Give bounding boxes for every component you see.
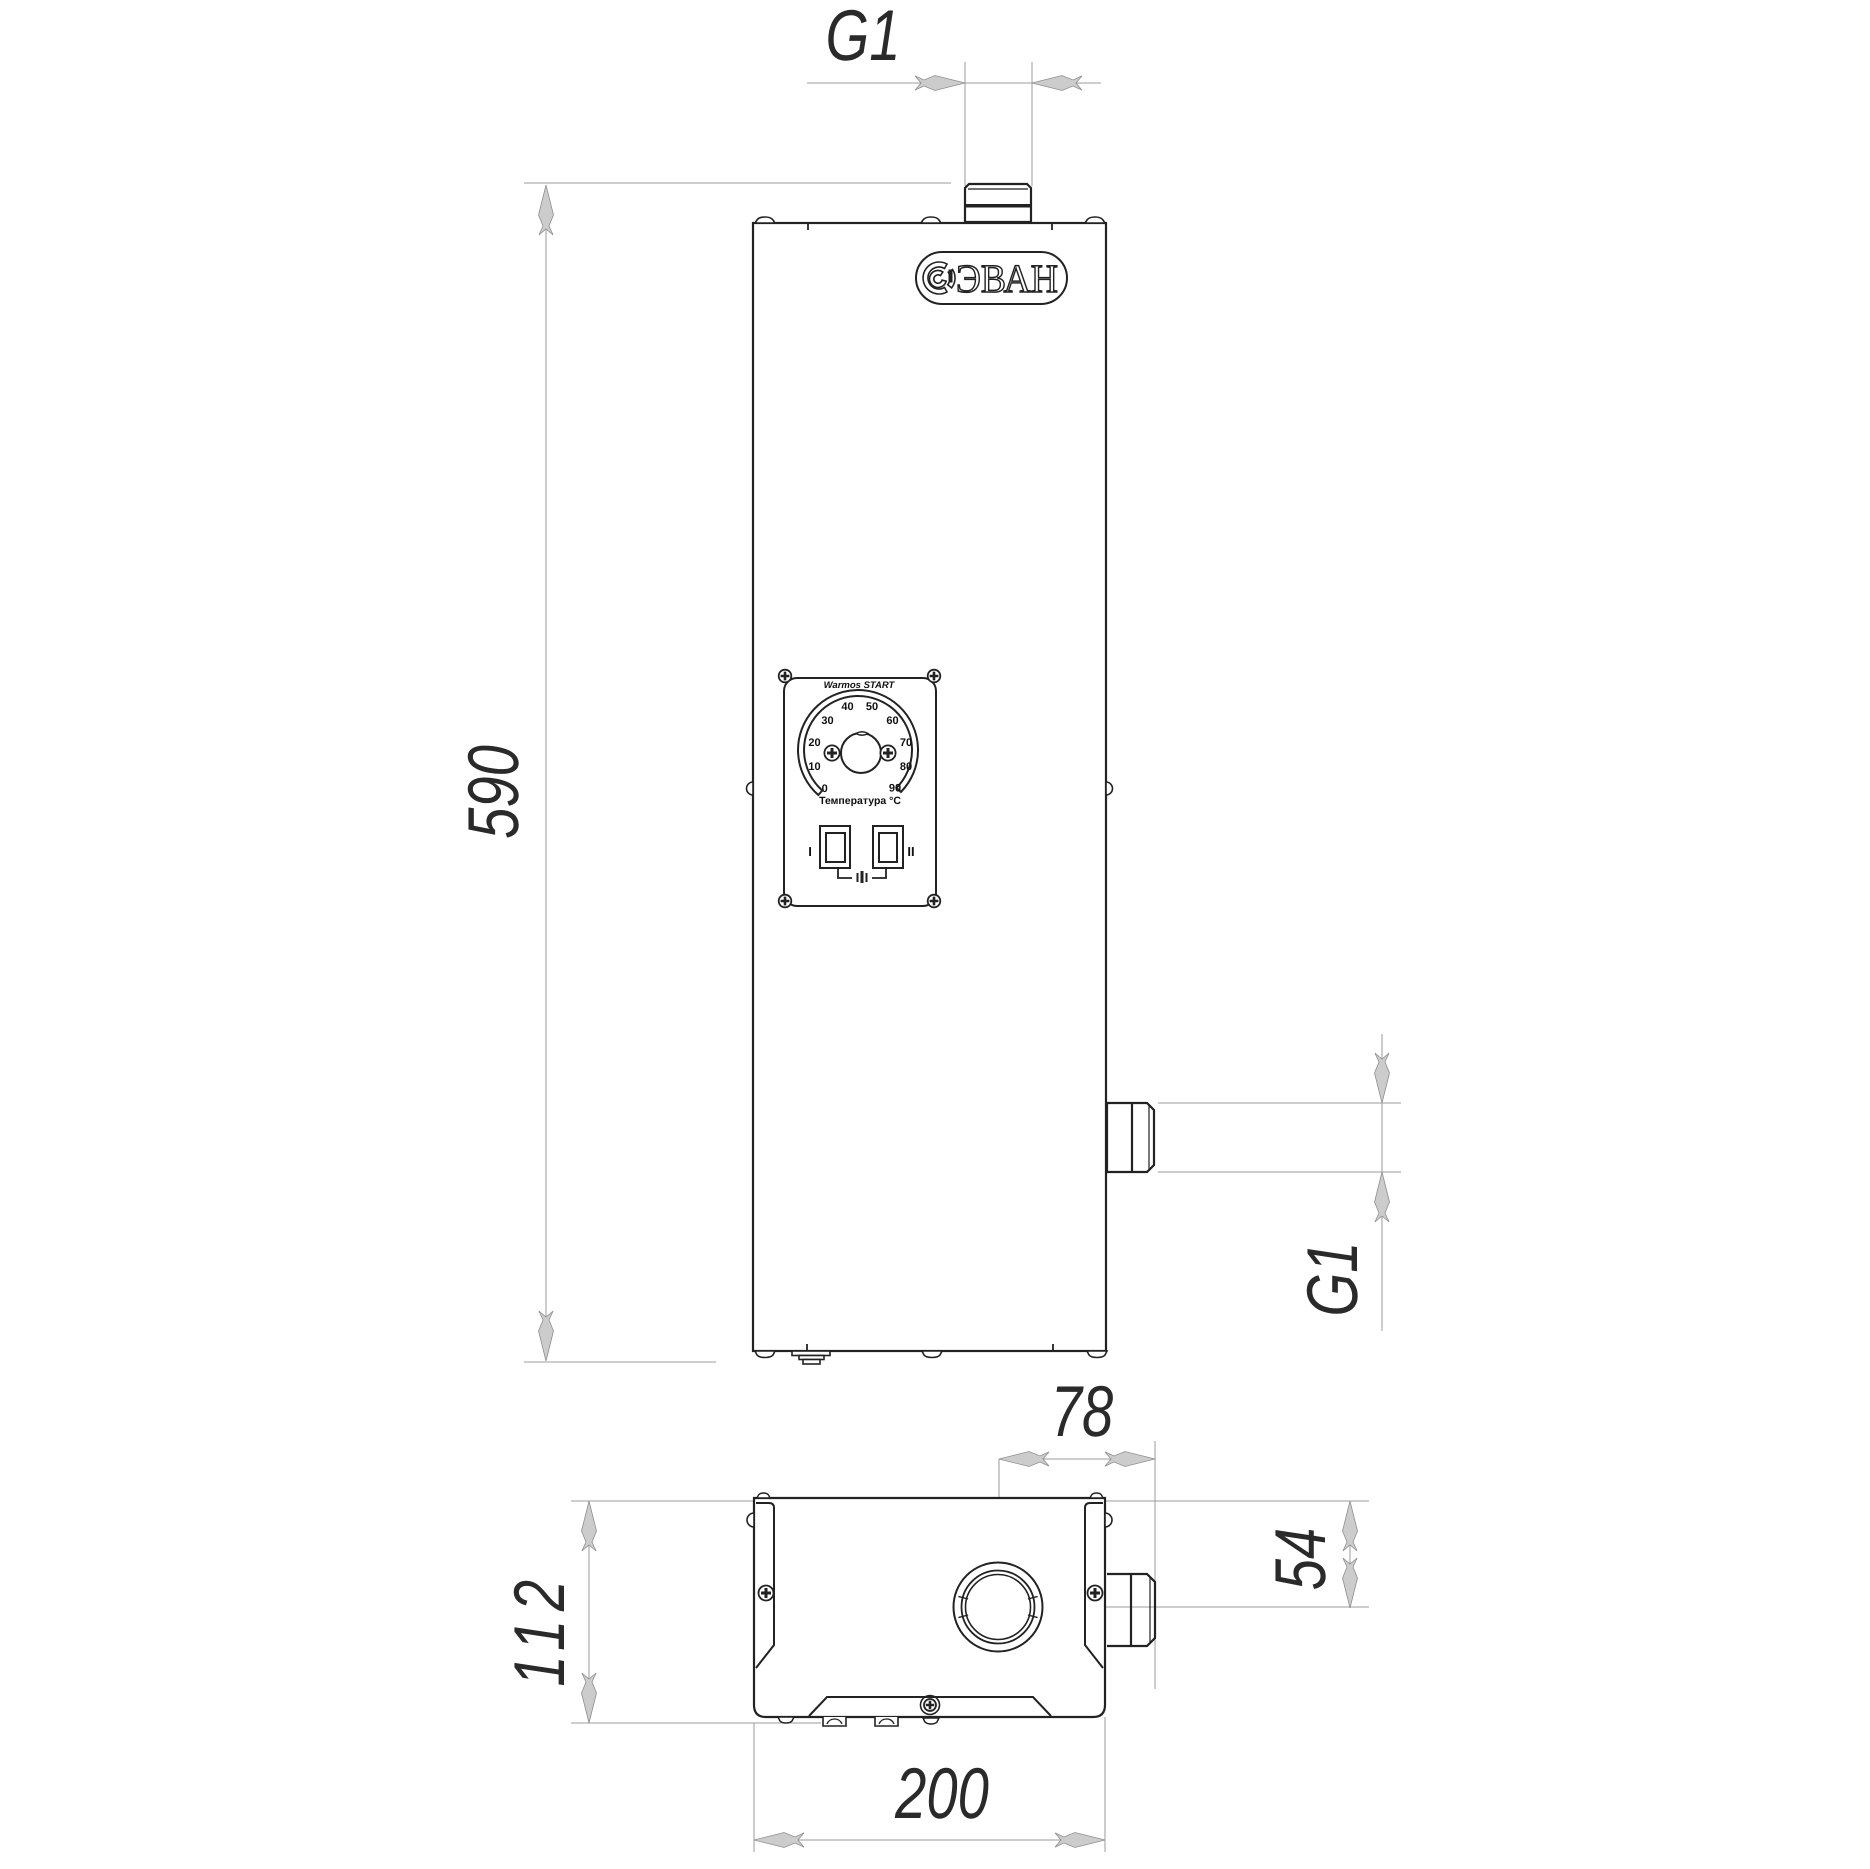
svg-text:54: 54 xyxy=(1261,1528,1341,1590)
svg-text:90: 90 xyxy=(889,783,901,795)
svg-text:G1: G1 xyxy=(1293,1242,1373,1317)
svg-text:20: 20 xyxy=(808,737,820,749)
svg-text:70: 70 xyxy=(900,737,912,749)
svg-text:ЭВАН: ЭВАН xyxy=(956,256,1058,301)
svg-text:590: 590 xyxy=(454,745,534,839)
svg-text:80: 80 xyxy=(900,761,912,773)
svg-text:112: 112 xyxy=(500,1571,580,1686)
svg-text:30: 30 xyxy=(821,715,833,727)
svg-text:0: 0 xyxy=(822,783,828,795)
svg-text:78: 78 xyxy=(1051,1372,1113,1452)
svg-text:I: I xyxy=(808,844,812,859)
svg-text:200: 200 xyxy=(894,1754,988,1834)
svg-text:40: 40 xyxy=(841,701,853,713)
svg-text:G1: G1 xyxy=(826,0,901,76)
svg-text:10: 10 xyxy=(808,761,820,773)
svg-text:60: 60 xyxy=(886,715,898,727)
svg-text:II: II xyxy=(907,844,914,859)
svg-text:Температура °C: Температура °C xyxy=(819,795,901,807)
svg-text:50: 50 xyxy=(866,701,878,713)
